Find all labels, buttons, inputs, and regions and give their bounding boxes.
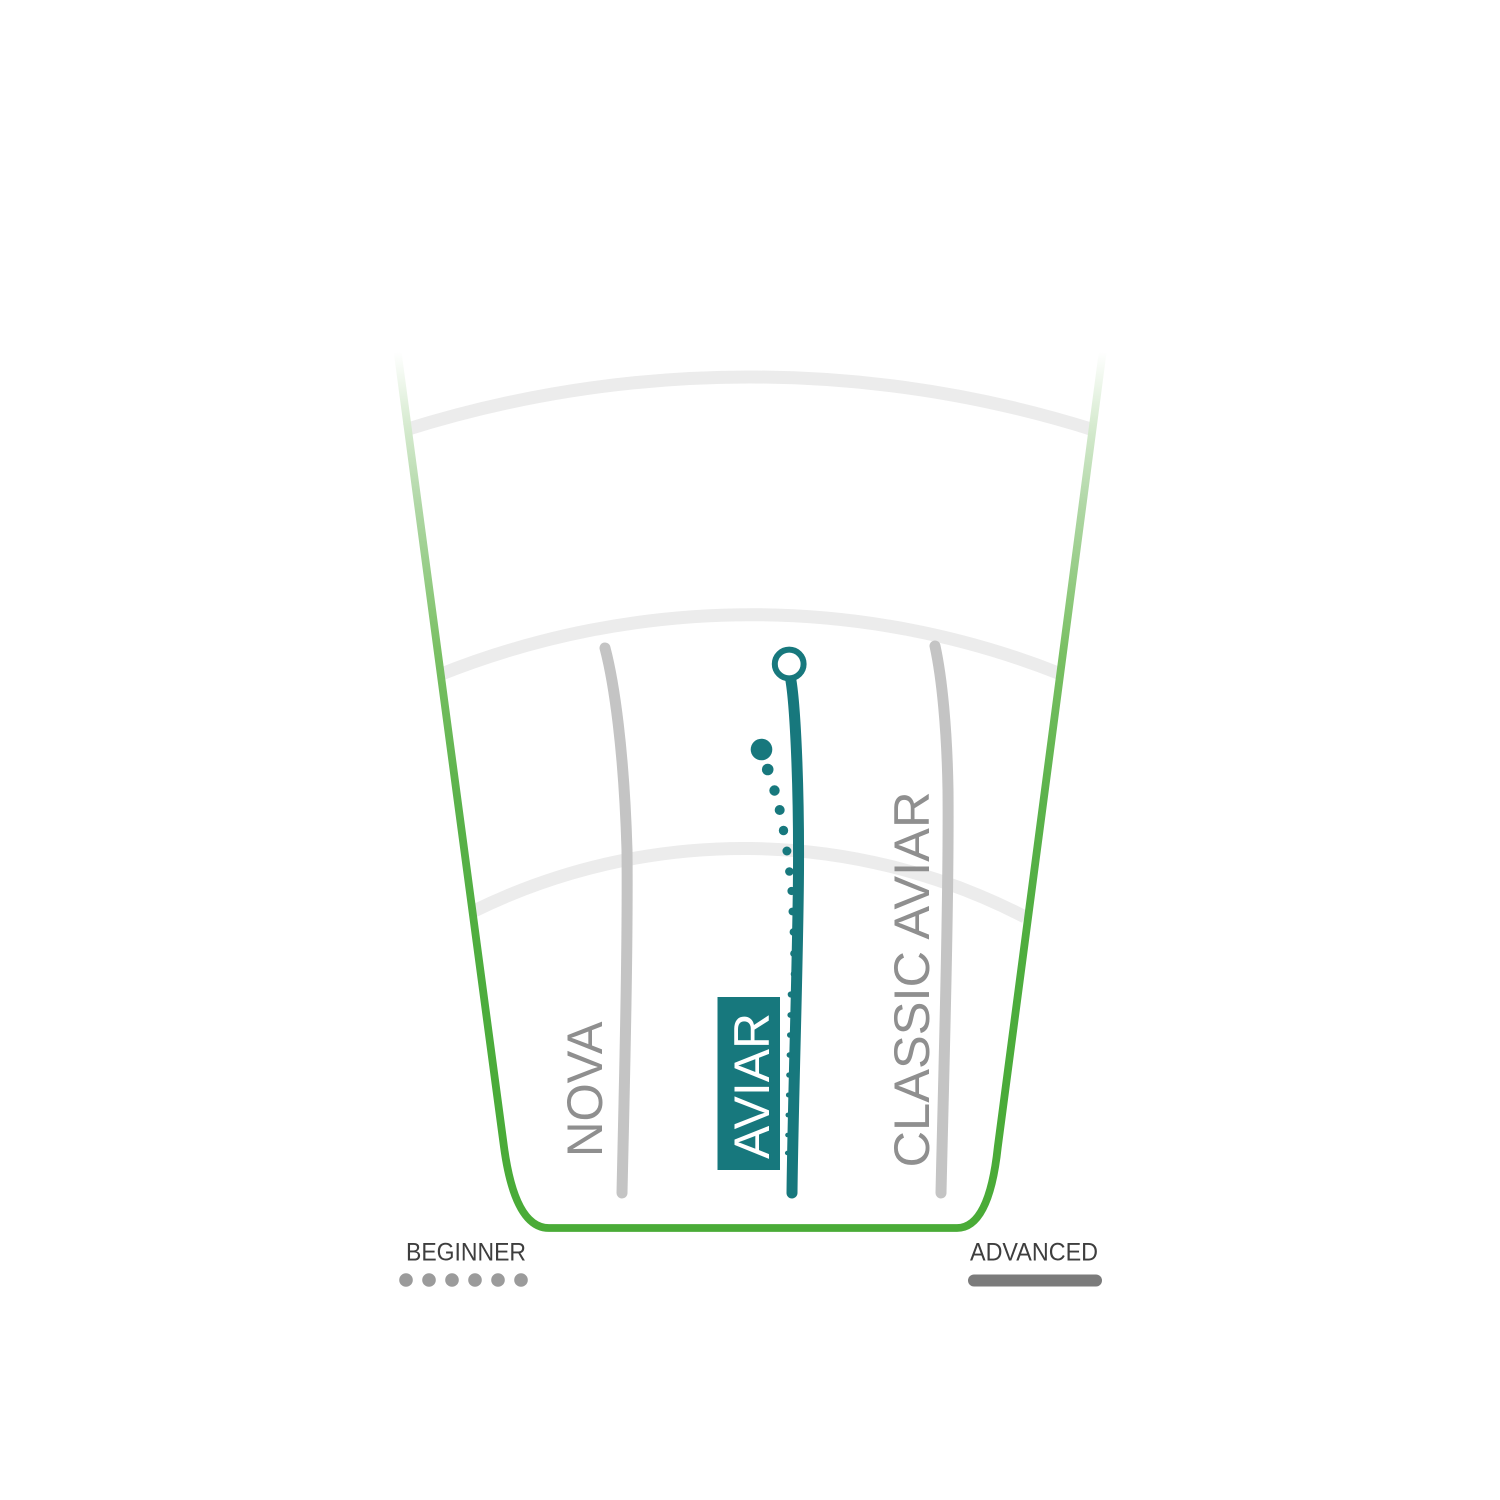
svg-text:BEGINNER: BEGINNER (406, 1239, 526, 1267)
svg-text:CLASSIC AVIAR: CLASSIC AVIAR (884, 792, 940, 1168)
svg-text:NOVA: NOVA (557, 1021, 613, 1157)
svg-text:AVIAR: AVIAR (724, 1013, 780, 1159)
svg-text:ADVANCED: ADVANCED (970, 1239, 1098, 1267)
